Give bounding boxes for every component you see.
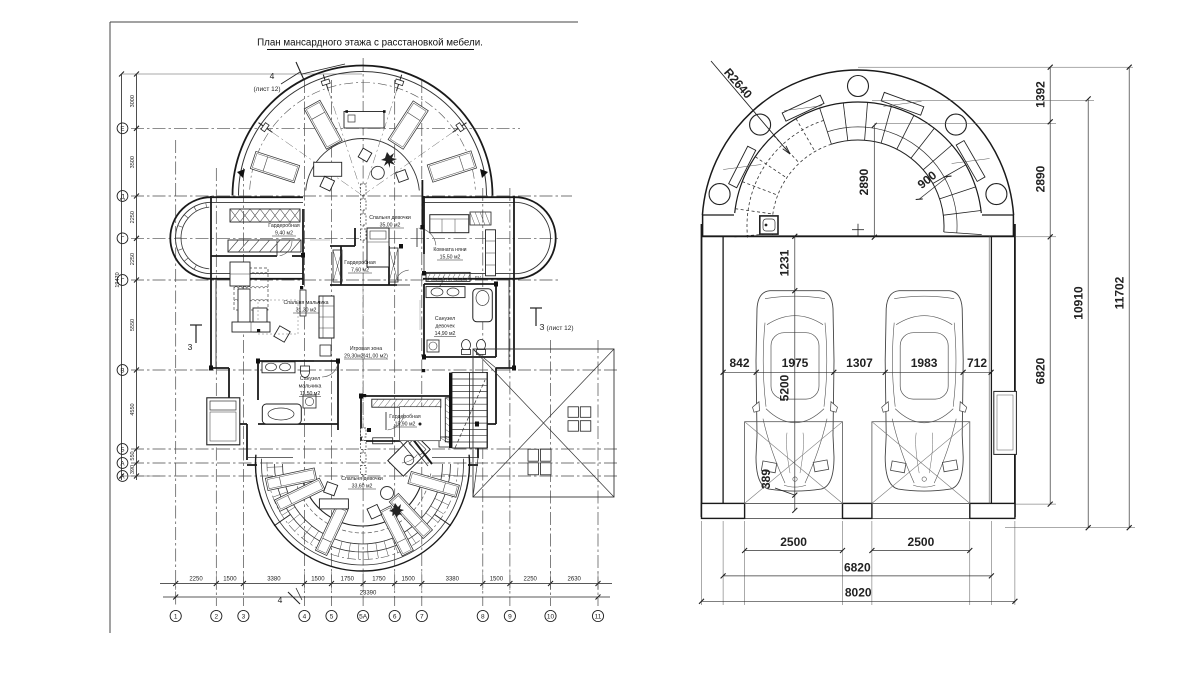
svg-text:Санузел: Санузел xyxy=(435,316,455,322)
svg-text:390: 390 xyxy=(130,465,136,474)
svg-text:33,60 м2: 33,60 м2 xyxy=(352,484,373,490)
svg-text:2630: 2630 xyxy=(568,577,582,583)
svg-text:23390: 23390 xyxy=(360,591,377,597)
svg-text:4: 4 xyxy=(303,614,307,621)
svg-text:4: 4 xyxy=(270,71,275,81)
svg-text:1500: 1500 xyxy=(311,577,325,583)
svg-text:5: 5 xyxy=(330,614,334,621)
svg-text:8: 8 xyxy=(481,614,485,621)
svg-text:2250: 2250 xyxy=(189,577,203,583)
svg-text:712: 712 xyxy=(967,356,987,370)
svg-text:2: 2 xyxy=(214,614,218,621)
svg-text:10: 10 xyxy=(547,614,555,621)
svg-text:9,40 м2: 9,40 м2 xyxy=(275,231,293,237)
svg-text:Санузел: Санузел xyxy=(300,376,320,382)
svg-text:3380: 3380 xyxy=(446,577,460,583)
svg-text:Комната няни: Комната няни xyxy=(433,247,466,253)
svg-text:4550: 4550 xyxy=(130,403,136,415)
svg-text:2500: 2500 xyxy=(780,535,807,549)
svg-text:FV: FV xyxy=(475,275,481,280)
svg-text:План мансардного этажа с расст: План мансардного этажа с расстановкой ме… xyxy=(257,38,483,49)
svg-text:Б: Б xyxy=(120,446,124,453)
svg-text:1307: 1307 xyxy=(846,356,873,370)
svg-text:15,90 м2: 15,90 м2 xyxy=(395,422,416,428)
svg-text:Спальня мальчика: Спальня мальчика xyxy=(284,300,329,306)
svg-text:мальчика: мальчика xyxy=(299,384,322,390)
svg-text:5200: 5200 xyxy=(778,374,792,401)
svg-text:Гардеробная: Гардеробная xyxy=(268,223,300,229)
svg-text:2250: 2250 xyxy=(524,577,538,583)
svg-text:1500: 1500 xyxy=(402,577,416,583)
svg-text:1392: 1392 xyxy=(1034,81,1048,108)
svg-text:1500: 1500 xyxy=(223,577,237,583)
svg-text:2890: 2890 xyxy=(857,168,871,195)
svg-text:2890: 2890 xyxy=(1034,165,1048,192)
svg-text:9: 9 xyxy=(508,614,512,621)
svg-text:2250: 2250 xyxy=(130,211,136,223)
svg-text:1975: 1975 xyxy=(782,356,809,370)
svg-text:Гардеробная: Гардеробная xyxy=(344,260,376,266)
svg-text:девочек: девочек xyxy=(435,324,455,330)
svg-text:Гардеробная: Гардеробная xyxy=(389,414,421,420)
svg-text:1750: 1750 xyxy=(372,577,386,583)
svg-text:11: 11 xyxy=(595,614,602,621)
svg-text:6: 6 xyxy=(393,614,397,621)
svg-text:35,00 м2: 35,00 м2 xyxy=(380,223,401,229)
svg-text:Игровая зона: Игровая зона xyxy=(350,346,382,352)
svg-text:6820: 6820 xyxy=(1034,357,1048,384)
svg-text:8020: 8020 xyxy=(845,586,872,600)
svg-text:15,50 м2: 15,50 м2 xyxy=(440,255,461,261)
svg-text:5550: 5550 xyxy=(130,319,136,331)
svg-text:11,50 м2: 11,50 м2 xyxy=(300,391,321,397)
svg-text:Спальня девочки: Спальня девочки xyxy=(369,215,411,221)
svg-text:1750: 1750 xyxy=(341,577,355,583)
svg-text:6820: 6820 xyxy=(844,561,871,575)
svg-text:389: 389 xyxy=(759,469,773,489)
svg-text:2500: 2500 xyxy=(908,535,935,549)
svg-text:В: В xyxy=(120,367,124,374)
svg-text:2250: 2250 xyxy=(130,253,136,265)
svg-text:7: 7 xyxy=(420,614,424,621)
svg-text:19470: 19470 xyxy=(115,272,121,287)
svg-text:10910: 10910 xyxy=(1072,286,1086,320)
svg-text:11702: 11702 xyxy=(1113,276,1127,309)
svg-text:4: 4 xyxy=(278,595,283,605)
svg-text:1231: 1231 xyxy=(778,249,792,276)
svg-text:1: 1 xyxy=(174,614,178,621)
svg-text:(лист 12): (лист 12) xyxy=(546,325,573,332)
svg-text:(лист 12): (лист 12) xyxy=(253,86,280,93)
svg-text:14,90 м2: 14,90 м2 xyxy=(435,331,456,337)
svg-text:5A: 5A xyxy=(359,614,368,621)
svg-text:3: 3 xyxy=(242,614,246,621)
svg-text:З: З xyxy=(539,322,544,332)
svg-text:31,30 м2: 31,30 м2 xyxy=(296,308,317,314)
svg-text:1500: 1500 xyxy=(490,577,504,583)
svg-text:3000: 3000 xyxy=(130,95,136,107)
svg-text:7,60 м2: 7,60 м2 xyxy=(351,268,369,274)
svg-text:550: 550 xyxy=(130,451,136,460)
svg-text:842: 842 xyxy=(729,356,749,370)
svg-text:Спальня девочки: Спальня девочки xyxy=(341,476,383,482)
svg-text:29,30м2(41,00 м2): 29,30м2(41,00 м2) xyxy=(344,354,388,360)
svg-text:3500: 3500 xyxy=(130,156,136,168)
svg-text:Е: Е xyxy=(120,126,124,133)
svg-text:1983: 1983 xyxy=(911,356,938,370)
svg-text:3: 3 xyxy=(188,342,193,352)
svg-text:3380: 3380 xyxy=(267,577,281,583)
